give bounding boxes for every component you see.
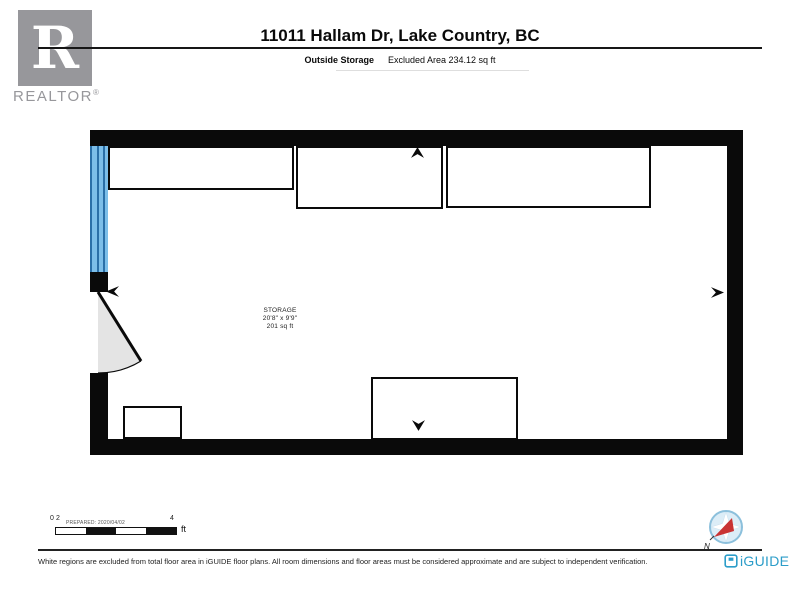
section-label: Outside Storage — [304, 55, 374, 65]
window-pane-line — [97, 146, 99, 272]
realtor-wordmark: REALTOR® — [13, 88, 100, 105]
scale-unit-label: ft — [181, 524, 186, 534]
footer-divider — [38, 549, 762, 551]
closet-top-right — [446, 146, 651, 208]
wall-bottom — [90, 439, 743, 455]
iguide-wordmark: iGUIDE — [740, 553, 789, 569]
window-pane-line — [103, 146, 105, 272]
window-pane-line — [90, 146, 92, 272]
closet-top-left — [108, 146, 294, 190]
scale-tick-2: 2 — [56, 515, 60, 522]
footer-disclaimer: White regions are excluded from total fl… — [38, 557, 658, 566]
subtitle-row: Outside StorageExcluded Area 234.12 sq f… — [0, 55, 800, 65]
subtitle-divider — [336, 70, 529, 71]
scale-segment — [146, 528, 176, 534]
header-divider — [38, 47, 762, 49]
wall-top — [90, 130, 743, 146]
page-title: 11011 Hallam Dr, Lake Country, BC — [0, 26, 800, 46]
door-swing — [88, 288, 150, 380]
iguide-logo: iGUIDE — [724, 553, 789, 569]
arrow-down-icon — [412, 420, 425, 431]
compass-icon: N — [702, 506, 750, 550]
arrow-up-icon — [411, 147, 424, 158]
scale-tick-0: 0 — [50, 515, 54, 522]
iguide-glyph-icon — [724, 554, 738, 568]
scale-tick-4: 4 — [170, 515, 174, 522]
scale-segment — [56, 528, 86, 534]
room-name: STORAGE — [230, 307, 330, 315]
room-label: STORAGE 20'8" x 9'9" 201 sq ft — [230, 307, 330, 331]
registered-symbol: ® — [93, 88, 100, 97]
prepared-date-label: PREPARED: 2020/04/02 — [66, 520, 125, 526]
scale-segment — [86, 528, 116, 534]
floor-plan-page: R REALTOR® 11011 Hallam Dr, Lake Country… — [0, 0, 800, 600]
wall-left-lower — [90, 373, 108, 439]
arrow-left-icon — [106, 286, 119, 297]
scale-segment — [116, 528, 146, 534]
wall-right — [727, 130, 743, 455]
scale-bar — [55, 527, 177, 535]
room-area: 201 sq ft — [230, 323, 330, 331]
excluded-area-label: Excluded Area 234.12 sq ft — [388, 55, 496, 65]
window — [90, 146, 108, 272]
arrow-right-icon — [711, 287, 724, 298]
fixture-bottom-left — [123, 406, 182, 439]
realtor-wordmark-text: REALTOR — [13, 88, 93, 105]
room-dimensions: 20'8" x 9'9" — [230, 315, 330, 323]
fixture-bottom-middle — [371, 377, 518, 440]
